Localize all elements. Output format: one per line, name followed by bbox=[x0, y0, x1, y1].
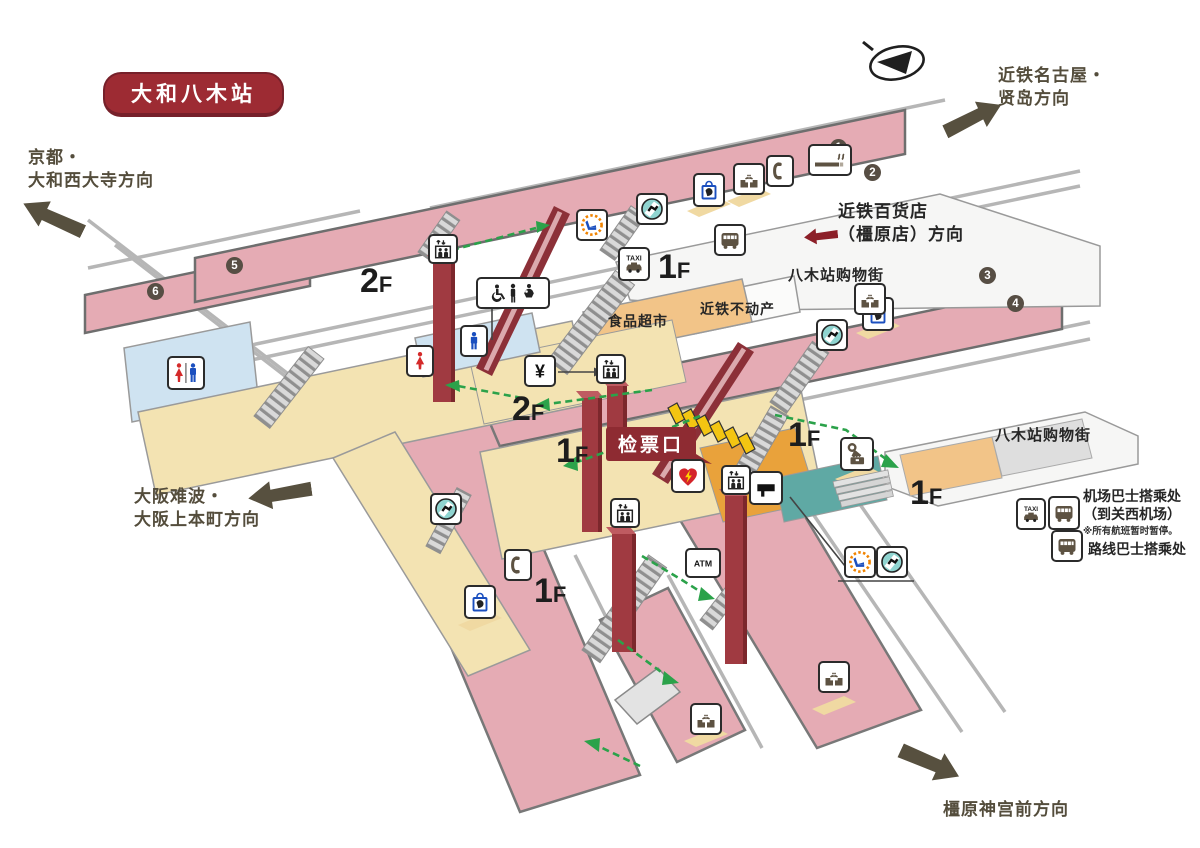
svg-text:TAXI: TAXI bbox=[626, 256, 641, 263]
platform-number-4: 4 bbox=[1007, 295, 1024, 312]
svg-text:ATM: ATM bbox=[694, 559, 712, 569]
svg-text:TAXI: TAXI bbox=[1024, 506, 1038, 513]
shopping-street-top-label: 八木站购物街 bbox=[788, 264, 884, 285]
direction-kyoto: 京都・ 大和西大寺方向 bbox=[28, 146, 154, 193]
elevator-icon bbox=[596, 354, 626, 384]
drinking-fountain-icon bbox=[818, 661, 850, 693]
aed-icon bbox=[671, 459, 705, 493]
direction-nagoya-line2: 贤岛方向 bbox=[998, 87, 1106, 110]
platform-number-5: 5 bbox=[226, 257, 243, 274]
elevator-icon bbox=[610, 498, 640, 528]
womens-toilet-icon bbox=[406, 345, 434, 377]
legend-route-bus: 路线巴士搭乘处 bbox=[1088, 540, 1186, 558]
restroom-icon bbox=[167, 356, 205, 390]
elevator-icon bbox=[721, 465, 751, 495]
ticket-machine-icon bbox=[430, 493, 462, 525]
direction-nagoya: 近铁名古屋・ 贤岛方向 bbox=[998, 64, 1106, 111]
floor-label: 1F bbox=[658, 250, 690, 284]
bus-stop-icon bbox=[1051, 530, 1083, 562]
direction-kashihara: 橿原神宫前方向 bbox=[943, 798, 1069, 821]
telephone-icon bbox=[504, 549, 532, 581]
station-map: 大和八木站 京都・ 大和西大寺方向 近铁名古屋・ 贤岛方向 近铁百货店 （橿原店… bbox=[0, 0, 1200, 848]
taxi-stand-icon: TAXI bbox=[618, 247, 650, 281]
floor-label: 1F bbox=[910, 476, 942, 510]
floor-label: 1F bbox=[534, 574, 566, 608]
express-ticket-office-icon bbox=[844, 546, 876, 578]
coin-lockers-icon bbox=[840, 437, 874, 471]
telephone-icon bbox=[766, 155, 794, 187]
ticket-machine-icon bbox=[816, 319, 848, 351]
direction-kyoto-line1: 京都・ bbox=[28, 146, 154, 169]
ticket-machine-icon bbox=[876, 546, 908, 578]
compass-icon bbox=[863, 42, 927, 85]
direction-nagoya-line1: 近铁名古屋・ bbox=[998, 64, 1106, 87]
smoking-area-icon bbox=[808, 144, 852, 176]
platform-number-6: 6 bbox=[147, 283, 164, 300]
legend-airport-bus-warning: ※所有航班暂时暂停。 bbox=[1083, 523, 1181, 537]
express-ticket-office-icon bbox=[576, 209, 608, 241]
mens-toilet-icon bbox=[460, 325, 488, 357]
floor-label: 2F bbox=[512, 392, 544, 426]
floor-label: 2F bbox=[360, 264, 392, 298]
ticket-gate-badge: 检票口 bbox=[606, 427, 696, 461]
direction-dept-line2: （橿原店）方向 bbox=[838, 223, 964, 246]
bus-stop-icon bbox=[714, 224, 746, 256]
legend-airport-bus-line1: 机场巴士搭乘处 bbox=[1083, 487, 1181, 505]
atm-icon: ATM bbox=[685, 548, 721, 578]
real-estate-label: 近铁不动产 bbox=[700, 299, 775, 319]
station-name-badge: 大和八木站 bbox=[103, 72, 284, 117]
ticket-machine-icon bbox=[636, 193, 668, 225]
direction-dept-line1: 近铁百货店 bbox=[838, 200, 964, 223]
platform-number-3: 3 bbox=[979, 267, 996, 284]
direction-namba-line2: 大阪上本町方向 bbox=[134, 508, 260, 531]
legend-airport-bus: 机场巴士搭乘处 （到关西机场） ※所有航班暂时暂停。 bbox=[1083, 487, 1181, 537]
direction-namba: 大阪难波・ 大阪上本町方向 bbox=[134, 485, 260, 532]
bus-stop-icon bbox=[1048, 496, 1080, 530]
drinking-fountain-icon bbox=[854, 283, 886, 315]
direction-namba-line1: 大阪难波・ bbox=[134, 485, 260, 508]
platform-number-2: 2 bbox=[864, 164, 881, 181]
accessible-restroom-icon bbox=[476, 277, 550, 309]
floor-label: 1F bbox=[788, 418, 820, 452]
drinking-fountain-icon bbox=[733, 163, 765, 195]
direction-department-store: 近铁百货店 （橿原店）方向 bbox=[838, 200, 964, 247]
elevator-icon bbox=[428, 234, 458, 264]
floor-label: 1F bbox=[556, 434, 588, 468]
taxi-stand-icon: TAXI bbox=[1016, 498, 1046, 530]
legend-airport-bus-line2: （到关西机场） bbox=[1083, 505, 1181, 523]
kiosk-icon bbox=[693, 173, 725, 207]
fare-adjustment-icon: ¥ bbox=[524, 355, 556, 387]
drinking-fountain-icon bbox=[690, 703, 722, 735]
direction-kyoto-line2: 大和西大寺方向 bbox=[28, 169, 154, 192]
svg-text:¥: ¥ bbox=[535, 362, 545, 382]
kiosk-icon bbox=[464, 585, 496, 619]
shopping-street-right-label: 八木站购物街 bbox=[995, 424, 1091, 445]
direction-kashihara-line1: 橿原神宫前方向 bbox=[943, 798, 1069, 821]
service-counter-icon bbox=[749, 471, 783, 505]
supermarket-label: 食品超市 bbox=[608, 311, 668, 331]
